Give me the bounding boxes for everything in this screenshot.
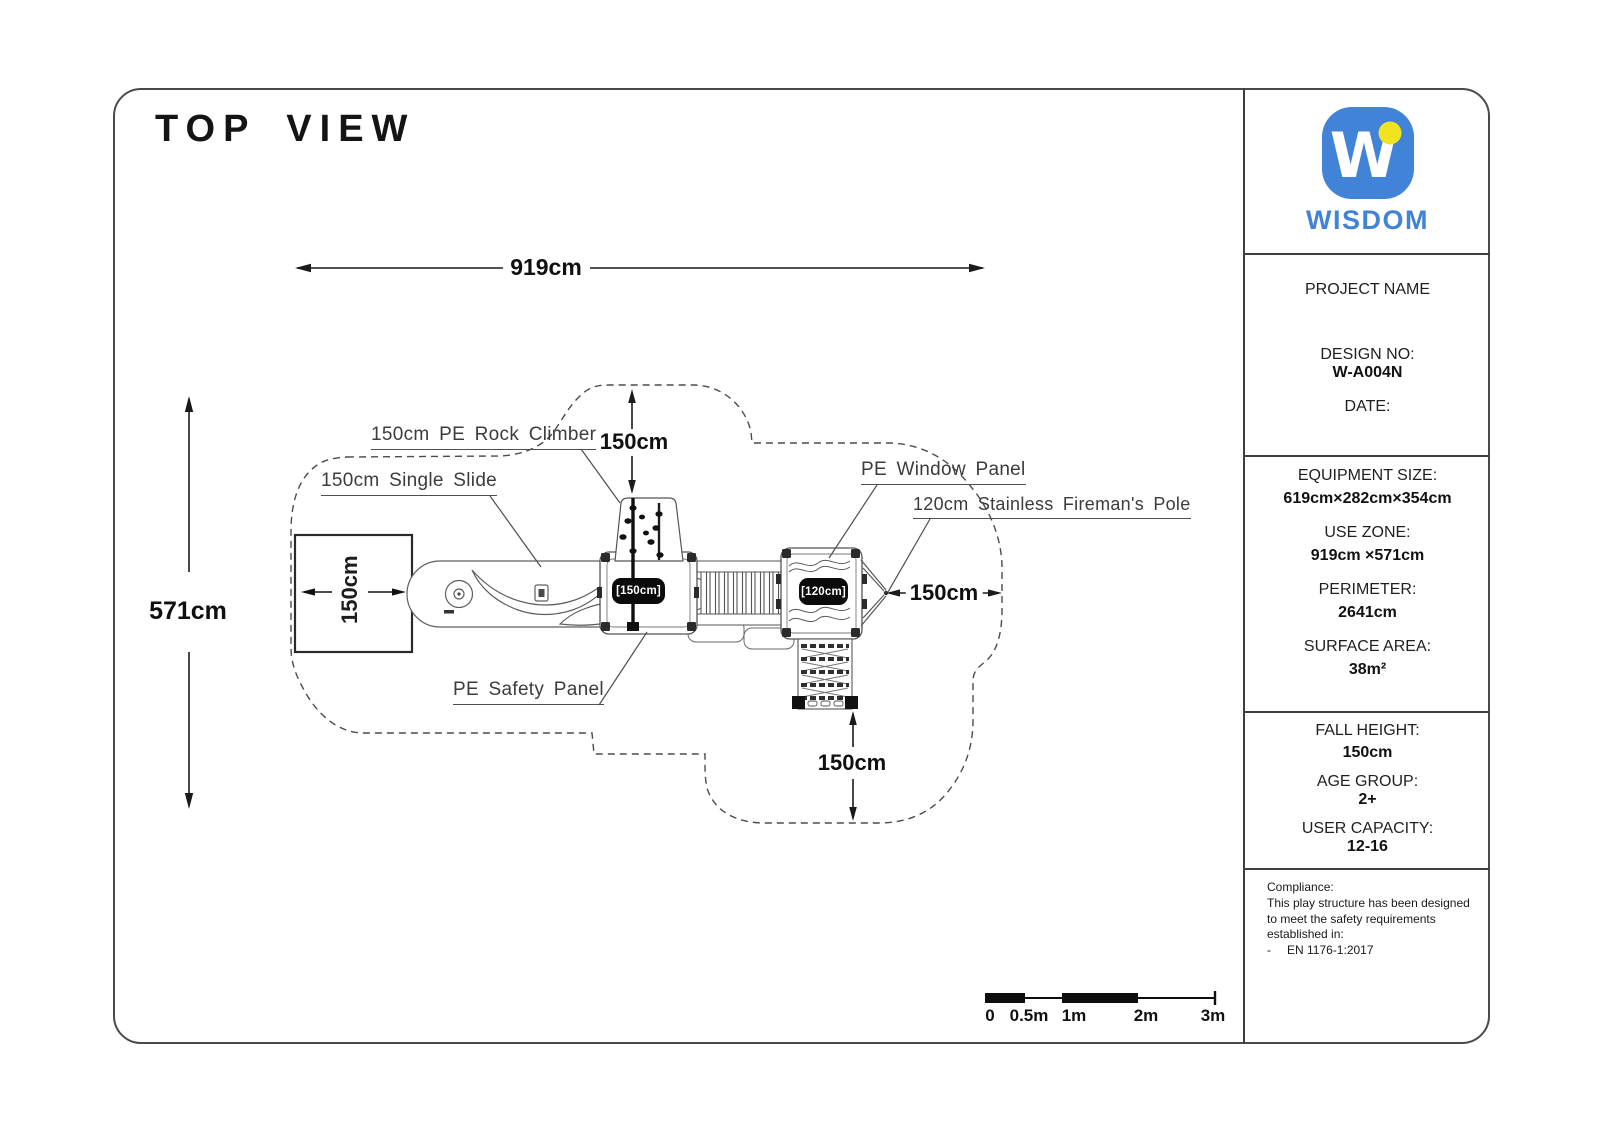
label-single-slide: 150cm Single Slide: [321, 470, 497, 496]
logo-section: W WISDOM: [1245, 88, 1490, 255]
tag-main-platform: [150cm]: [612, 578, 665, 604]
compliance-heading: Compliance:: [1267, 880, 1484, 896]
user-capacity-label: USER CAPACITY:: [1245, 820, 1490, 838]
compliance-section: Compliance: This play structure has been…: [1245, 870, 1490, 1042]
specs-section: EQUIPMENT SIZE: 619cm×282cm×354cm USE ZO…: [1245, 457, 1490, 713]
design-no-value: W-A004N: [1245, 364, 1490, 382]
access-ladder: [792, 639, 858, 709]
label-rock-climber: 150cm PE Rock Climber: [371, 424, 596, 450]
brand-name: WISDOM: [1306, 205, 1429, 236]
dim-pole-clearance: 150cm: [906, 580, 983, 606]
compliance-line2: to meet the safety requirements: [1267, 912, 1484, 928]
use-zone-value: 919cm ×571cm: [1245, 547, 1490, 565]
wisdom-logo-icon: W: [1320, 105, 1416, 201]
bridge: [694, 561, 792, 625]
fireman-pole-shape: [861, 560, 888, 626]
surface-area-label: SURFACE AREA:: [1245, 638, 1490, 656]
leader-single-slide: [490, 496, 541, 567]
dim-slide-exit: 150cm: [336, 560, 364, 624]
user-capacity-value: 12-16: [1245, 838, 1490, 856]
surface-area-value: 38m²: [1245, 661, 1490, 679]
dim-overall-width-arrow: [295, 264, 985, 272]
age-group-label: AGE GROUP:: [1245, 773, 1490, 791]
label-fireman-pole: 120cm Stainless Fireman's Pole: [913, 493, 1191, 519]
leader-rock-climber: [581, 449, 620, 503]
dim-overall-depth: 571cm: [145, 597, 231, 626]
design-no-label: DESIGN NO:: [1245, 346, 1490, 364]
compliance-line1: This play structure has been designed: [1267, 896, 1484, 912]
logo-yellow-dot: [1378, 122, 1401, 145]
compliance-line3: established in:: [1267, 927, 1484, 943]
safety-section: FALL HEIGHT: 150cm AGE GROUP: 2+ USER CA…: [1245, 713, 1490, 870]
label-safety-panel: PE Safety Panel: [453, 679, 604, 705]
scale-label-05m: 0.5m: [1010, 1006, 1049, 1026]
compliance-standard-row: - EN 1176-1:2017: [1267, 943, 1484, 959]
info-panel: W WISDOM PROJECT NAME DESIGN NO: W-A004N…: [1243, 88, 1490, 1044]
scale-label-0: 0: [985, 1006, 994, 1026]
leader-window-panel: [829, 485, 877, 558]
use-zone-label: USE ZONE:: [1245, 524, 1490, 542]
dim-overall-width: 919cm: [506, 254, 586, 281]
scale-label-1m: 1m: [1062, 1006, 1087, 1026]
tag-second-platform: [120cm]: [799, 578, 848, 605]
scale-label-3m: 3m: [1201, 1006, 1226, 1026]
compliance-bullet: -: [1267, 943, 1287, 959]
scale-bar: [985, 991, 1215, 1005]
equipment-size-label: EQUIPMENT SIZE:: [1245, 467, 1490, 485]
dim-climber-clearance: 150cm: [596, 429, 673, 455]
fall-height-label: FALL HEIGHT:: [1245, 722, 1490, 740]
perimeter-value: 2641cm: [1245, 604, 1490, 622]
leader-safety-panel: [599, 632, 647, 705]
project-section: PROJECT NAME DESIGN NO: W-A004N DATE:: [1245, 255, 1490, 457]
scale-label-2m: 2m: [1134, 1006, 1159, 1026]
equipment-size-value: 619cm×282cm×354cm: [1245, 490, 1490, 508]
spec-sheet: TOP VIEW: [0, 0, 1600, 1131]
date-label: DATE:: [1245, 398, 1490, 416]
dim-ladder-clearance: 150cm: [814, 750, 891, 776]
fall-height-value: 150cm: [1245, 744, 1490, 762]
compliance-standard: EN 1176-1:2017: [1287, 943, 1374, 959]
project-name-label: PROJECT NAME: [1245, 281, 1490, 299]
label-window-panel: PE Window Panel: [861, 459, 1026, 485]
age-group-value: 2+: [1245, 791, 1490, 809]
rock-climber-shape: [615, 498, 683, 561]
perimeter-label: PERIMETER:: [1245, 581, 1490, 599]
